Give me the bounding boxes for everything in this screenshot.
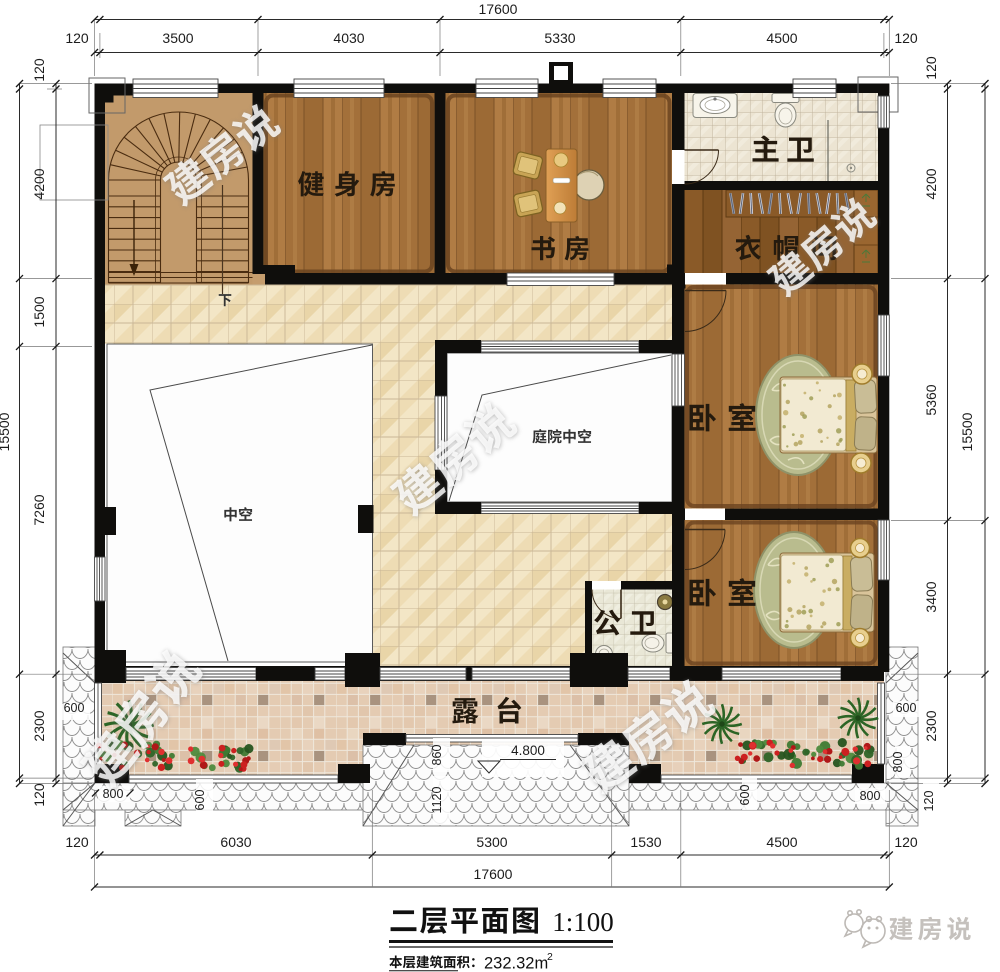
svg-text:15500: 15500 — [0, 412, 12, 451]
svg-text:1:100: 1:100 — [552, 907, 614, 937]
svg-text:120: 120 — [894, 834, 918, 850]
svg-text:4200: 4200 — [31, 168, 47, 199]
svg-text:800: 800 — [891, 752, 905, 773]
svg-text:17600: 17600 — [474, 866, 513, 882]
svg-text:120: 120 — [922, 791, 936, 812]
svg-text:2300: 2300 — [923, 710, 939, 741]
svg-text:17600: 17600 — [479, 1, 518, 17]
svg-text:1500: 1500 — [31, 296, 47, 327]
svg-text:120: 120 — [894, 30, 918, 46]
svg-text:15500: 15500 — [959, 412, 975, 451]
svg-text:5330: 5330 — [544, 30, 575, 46]
svg-text:7260: 7260 — [31, 494, 47, 525]
svg-text:232.32m: 232.32m — [484, 955, 548, 972]
svg-text:120: 120 — [31, 783, 47, 807]
svg-text:3500: 3500 — [162, 30, 193, 46]
svg-text:120: 120 — [923, 56, 939, 80]
svg-text:2300: 2300 — [31, 710, 47, 741]
svg-text:120: 120 — [65, 834, 89, 850]
svg-text:1120: 1120 — [430, 787, 444, 814]
svg-text:860: 860 — [430, 745, 444, 766]
svg-text:5360: 5360 — [923, 384, 939, 415]
svg-text:2: 2 — [547, 951, 553, 963]
svg-text:600: 600 — [193, 790, 207, 811]
svg-text:4500: 4500 — [766, 30, 797, 46]
svg-text:6030: 6030 — [220, 834, 251, 850]
svg-text:4.800: 4.800 — [511, 743, 545, 758]
svg-text:4500: 4500 — [766, 834, 797, 850]
svg-text:3400: 3400 — [923, 581, 939, 612]
svg-text:600: 600 — [896, 701, 917, 715]
svg-text:120: 120 — [31, 58, 47, 82]
svg-text:5300: 5300 — [476, 834, 507, 850]
svg-text:800: 800 — [103, 787, 124, 801]
svg-text:800: 800 — [860, 789, 881, 803]
svg-text:4200: 4200 — [923, 168, 939, 199]
svg-text:600: 600 — [64, 701, 85, 715]
svg-text:4030: 4030 — [333, 30, 364, 46]
svg-text:1530: 1530 — [630, 834, 661, 850]
svg-text:120: 120 — [65, 30, 89, 46]
svg-text:600: 600 — [738, 785, 752, 806]
